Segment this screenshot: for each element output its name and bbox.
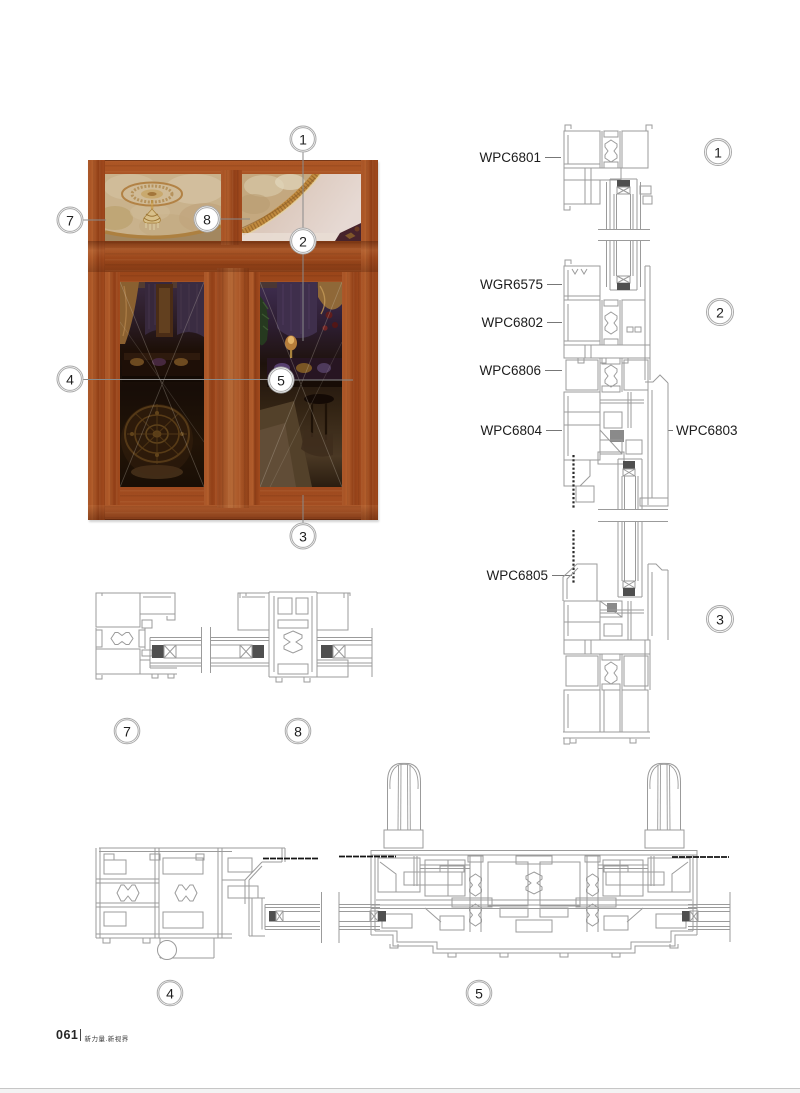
svg-text:8: 8 <box>294 724 302 740</box>
svg-text:5: 5 <box>475 986 483 1002</box>
svg-text:WPC6805: WPC6805 <box>486 568 548 583</box>
svg-text:7: 7 <box>66 213 74 229</box>
svg-text:2: 2 <box>716 305 724 321</box>
svg-text:WPC6806: WPC6806 <box>479 363 541 378</box>
svg-text:3: 3 <box>299 529 307 545</box>
svg-text:5: 5 <box>277 373 285 389</box>
svg-text:WPC6804: WPC6804 <box>480 423 542 438</box>
svg-text:7: 7 <box>123 724 131 740</box>
svg-text:WPC6803: WPC6803 <box>676 423 738 438</box>
svg-text:3: 3 <box>716 612 724 628</box>
svg-text:4: 4 <box>66 372 74 388</box>
svg-text:8: 8 <box>203 212 211 228</box>
svg-text:4: 4 <box>166 986 174 1002</box>
svg-text:1: 1 <box>299 132 307 148</box>
svg-text:2: 2 <box>299 234 307 250</box>
svg-text:1: 1 <box>714 145 722 161</box>
svg-text:WPC6802: WPC6802 <box>481 315 543 330</box>
svg-text:WPC6801: WPC6801 <box>479 150 541 165</box>
svg-text:WGR6575: WGR6575 <box>480 277 543 292</box>
